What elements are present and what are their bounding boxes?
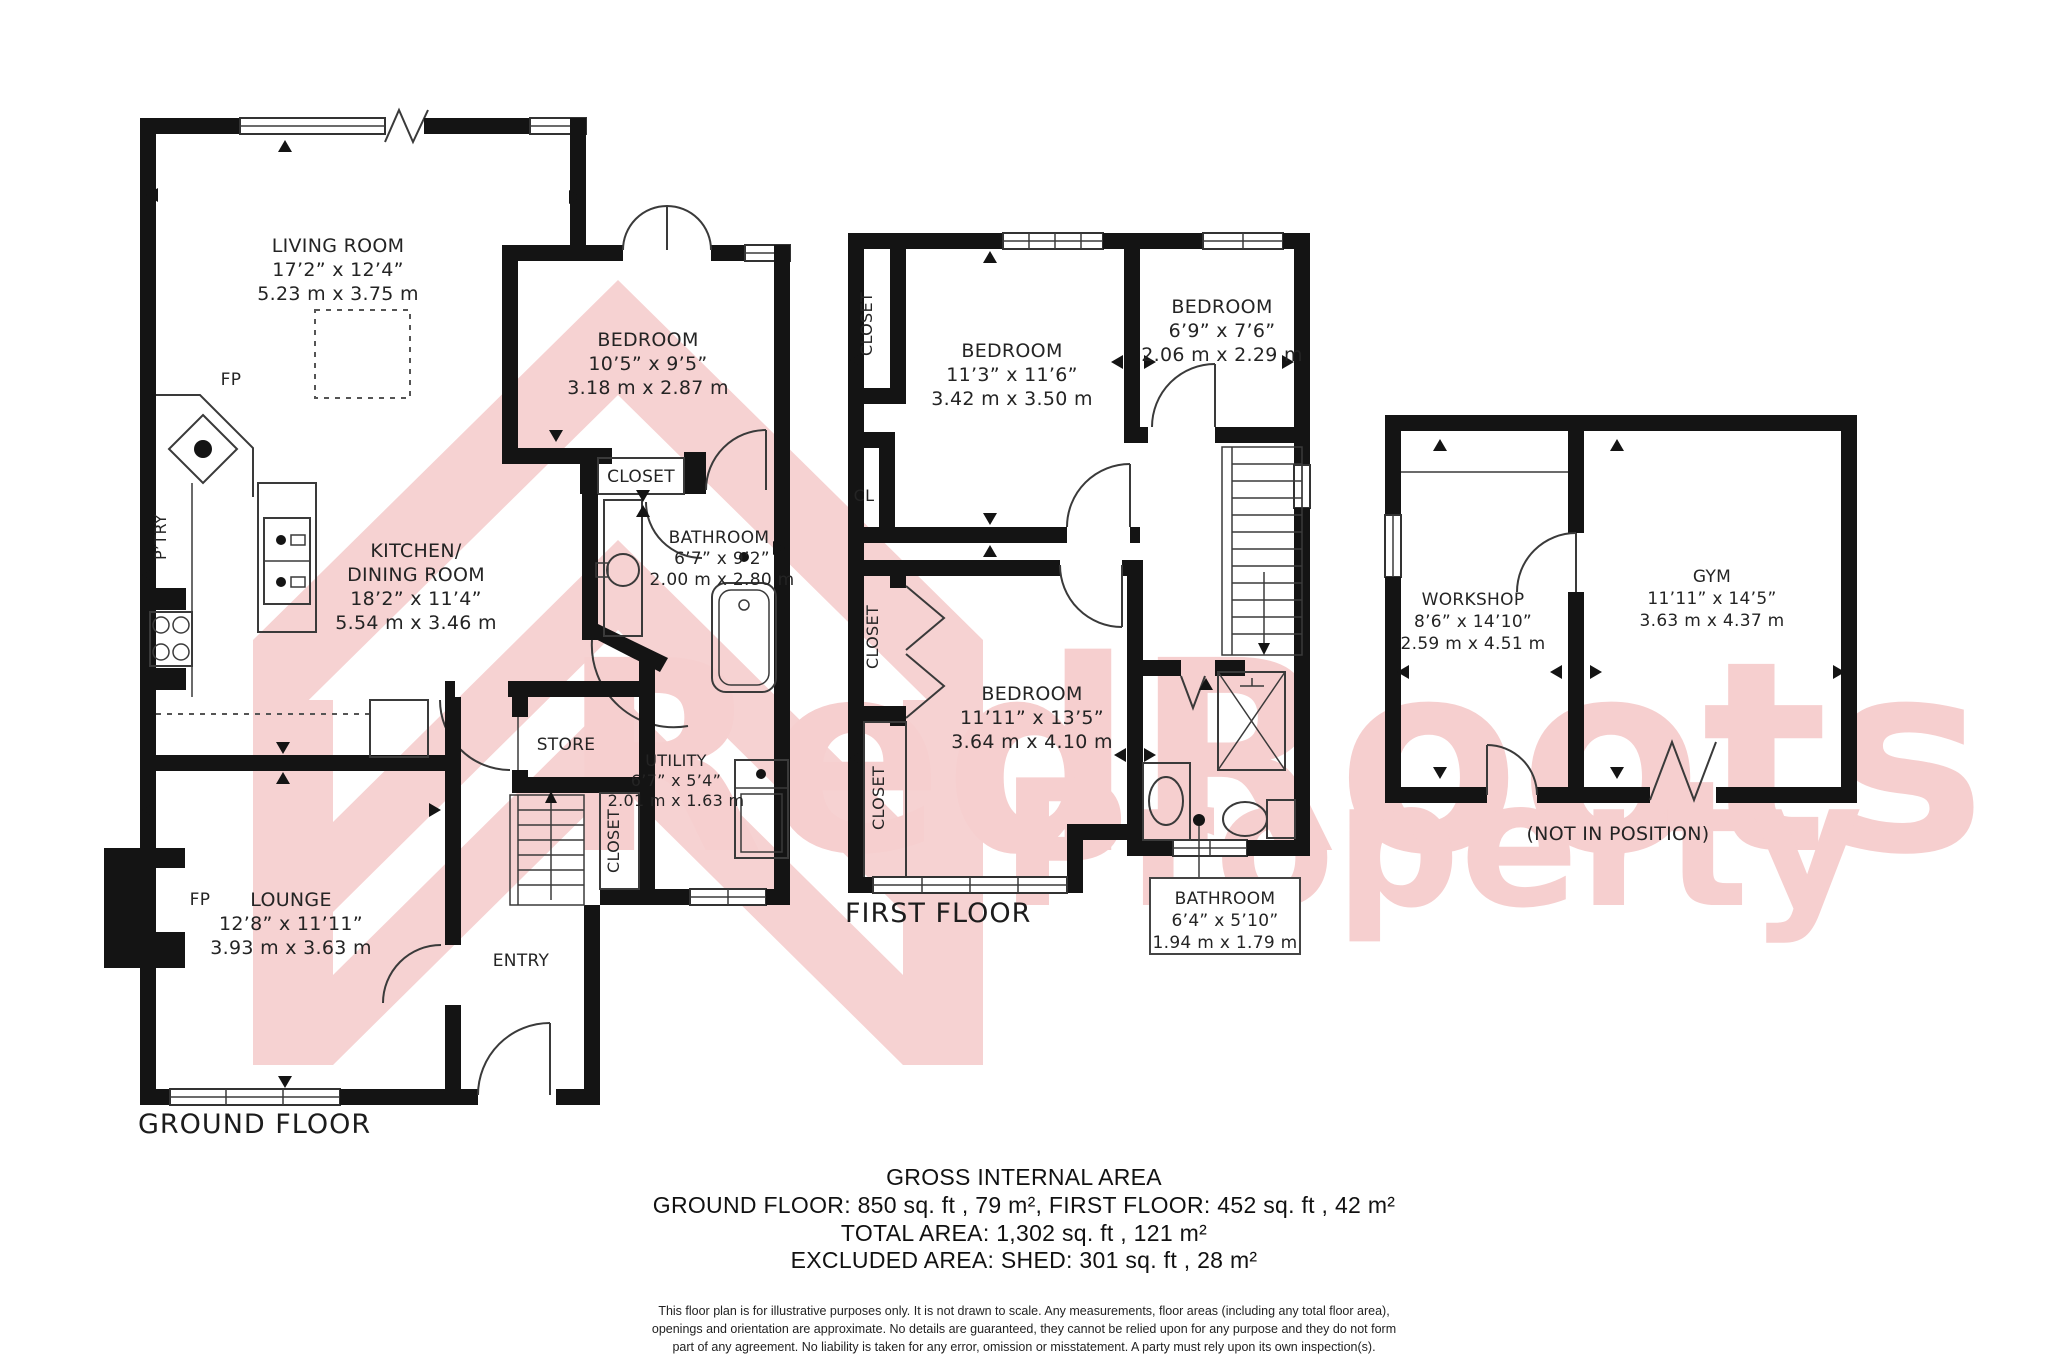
gf-bedroom-metric: 3.18 m x 2.87 m — [567, 377, 729, 399]
ff-closet-mid-label: CLOSET — [863, 605, 882, 669]
disclaimer-line3: part of any agreement. No liability is t… — [672, 1340, 1375, 1354]
kitchen-imperial: 18’2” x 11’4” — [350, 588, 482, 610]
gf-bathroom-name: BATHROOM — [669, 528, 770, 548]
footer-areas-line2: TOTAL AREA: 1,302 sq. ft , 121 m² — [841, 1220, 1207, 1246]
footer-heading: GROSS INTERNAL AREA — [886, 1164, 1162, 1190]
gf-bedroom-imperial: 10’5” x 9’5” — [588, 353, 707, 375]
gf-bathroom-imperial: 6’7” x 9’2” — [674, 549, 770, 569]
utility-name: UTILITY — [645, 751, 706, 770]
footer-areas-line1: GROUND FLOOR: 850 sq. ft , 79 m², FIRST … — [653, 1192, 1396, 1218]
workshop-imperial: 8’6” x 14’10” — [1414, 612, 1532, 632]
ff-bedroom2-name: BEDROOM — [1171, 296, 1272, 318]
kitchen-name1: KITCHEN/ — [370, 540, 461, 562]
ff-bedroom2-imperial: 6’9” x 7’6” — [1169, 320, 1276, 342]
ff-bedroom2-metric: 2.06 m x 2.29 m — [1141, 344, 1303, 366]
floorplan-page: RedRoots Property — [0, 0, 2048, 1365]
disclaimer-line1: This floor plan is for illustrative purp… — [658, 1304, 1389, 1318]
store-label: STORE — [537, 735, 596, 755]
not-in-position-note: (NOT IN POSITION) — [1526, 823, 1709, 845]
living-room-metric: 5.23 m x 3.75 m — [257, 283, 419, 305]
ff-closet-bottom-label: CLOSET — [869, 766, 888, 830]
lounge-metric: 3.93 m x 3.63 m — [210, 937, 372, 959]
ff-bedroom3-imperial: 11’11” x 13’5” — [960, 707, 1104, 729]
utility-imperial: 6’7” x 5’4” — [631, 771, 721, 790]
living-room-imperial: 17’2” x 12’4” — [272, 259, 404, 281]
ff-bedroom3-metric: 3.64 m x 4.10 m — [951, 731, 1113, 753]
living-room-name: LIVING ROOM — [272, 235, 405, 257]
gf-closet-label: CLOSET — [607, 467, 675, 487]
workshop-name: WORKSHOP — [1422, 590, 1525, 610]
pantry-label: P’TRY — [151, 514, 170, 560]
gf-bathroom-metric: 2.00 m x 2.80 m — [650, 570, 795, 590]
ground-floor-title: GROUND FLOOR — [138, 1109, 371, 1140]
first-floor-title: FIRST FLOOR — [845, 898, 1031, 929]
fireplace-label-living: FP — [221, 370, 242, 390]
floorplan-canvas: RedRoots Property — [0, 0, 2048, 1365]
ff-bathroom-imperial: 6’4” x 5’10” — [1172, 911, 1279, 931]
ff-bathroom-name: BATHROOM — [1175, 889, 1276, 909]
kitchen-metric: 5.54 m x 3.46 m — [335, 612, 497, 634]
ff-bedroom3-name: BEDROOM — [981, 683, 1082, 705]
ff-bedroom1-imperial: 11’3” x 11’6” — [946, 364, 1078, 386]
footer: GROSS INTERNAL AREA GROUND FLOOR: 850 sq… — [652, 1164, 1396, 1354]
ff-closet-top-label: CLOSET — [857, 292, 876, 356]
gym-imperial: 11’11” x 14’5” — [1647, 589, 1776, 609]
entry-label: ENTRY — [493, 951, 550, 971]
gym-metric: 3.63 m x 4.37 m — [1640, 611, 1785, 631]
ff-bedroom1-metric: 3.42 m x 3.50 m — [931, 388, 1093, 410]
gf-closet-entry-label: CLOSET — [604, 809, 623, 873]
gf-bedroom-name: BEDROOM — [597, 329, 698, 351]
ff-bedroom1-name: BEDROOM — [961, 340, 1062, 362]
lounge-name: LOUNGE — [250, 889, 332, 911]
gym-name: GYM — [1693, 567, 1731, 587]
ff-cl-label: CL — [854, 486, 875, 505]
footer-areas-line3: EXCLUDED AREA: SHED: 301 sq. ft , 28 m² — [791, 1247, 1258, 1273]
disclaimer-line2: openings and orientation are approximate… — [652, 1322, 1396, 1336]
utility-metric: 2.01 m x 1.63 m — [608, 791, 745, 810]
fireplace-label-lounge: FP — [190, 890, 211, 910]
ff-bathroom-metric: 1.94 m x 1.79 m — [1153, 933, 1298, 953]
lounge-imperial: 12’8” x 11’11” — [219, 913, 363, 935]
kitchen-name2: DINING ROOM — [347, 564, 485, 586]
workshop-metric: 2.59 m x 4.51 m — [1401, 634, 1546, 654]
